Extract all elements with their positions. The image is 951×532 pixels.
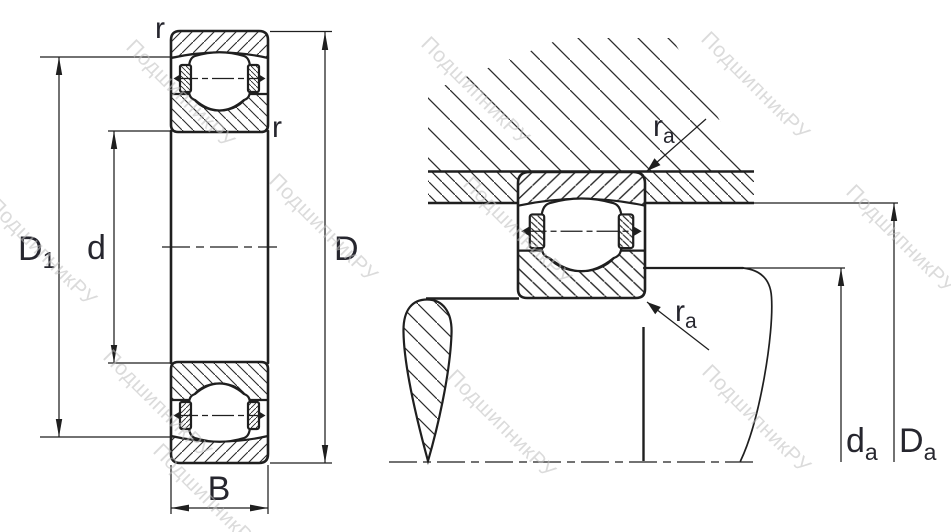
bearing-drawing-canvas: D1 d D B r r <box>0 0 951 532</box>
bearing-drawing: D1 d D B r r <box>0 0 951 532</box>
dim-label-Da: Da <box>899 422 937 465</box>
watermark-text: ПодшипникРУ <box>442 365 560 483</box>
watermark-layer: ПодшипникРУ ПодшипникРУ ПодшипникРУ Подш… <box>0 27 951 532</box>
housing-shoulder-right <box>645 172 754 203</box>
dim-label-da: da <box>846 422 878 465</box>
callout-ra-bottom: ra <box>647 295 709 350</box>
watermark-text: ПодшипникРУ <box>841 180 951 298</box>
label-r-top: r <box>155 12 165 45</box>
label-r-side: r <box>272 111 282 144</box>
watermark-text: ПодшипникРУ <box>697 360 815 478</box>
watermark-text: ПодшипникРУ <box>264 169 382 287</box>
label-ra-bottom: ra <box>675 295 697 333</box>
dim-label-d: d <box>87 229 106 267</box>
